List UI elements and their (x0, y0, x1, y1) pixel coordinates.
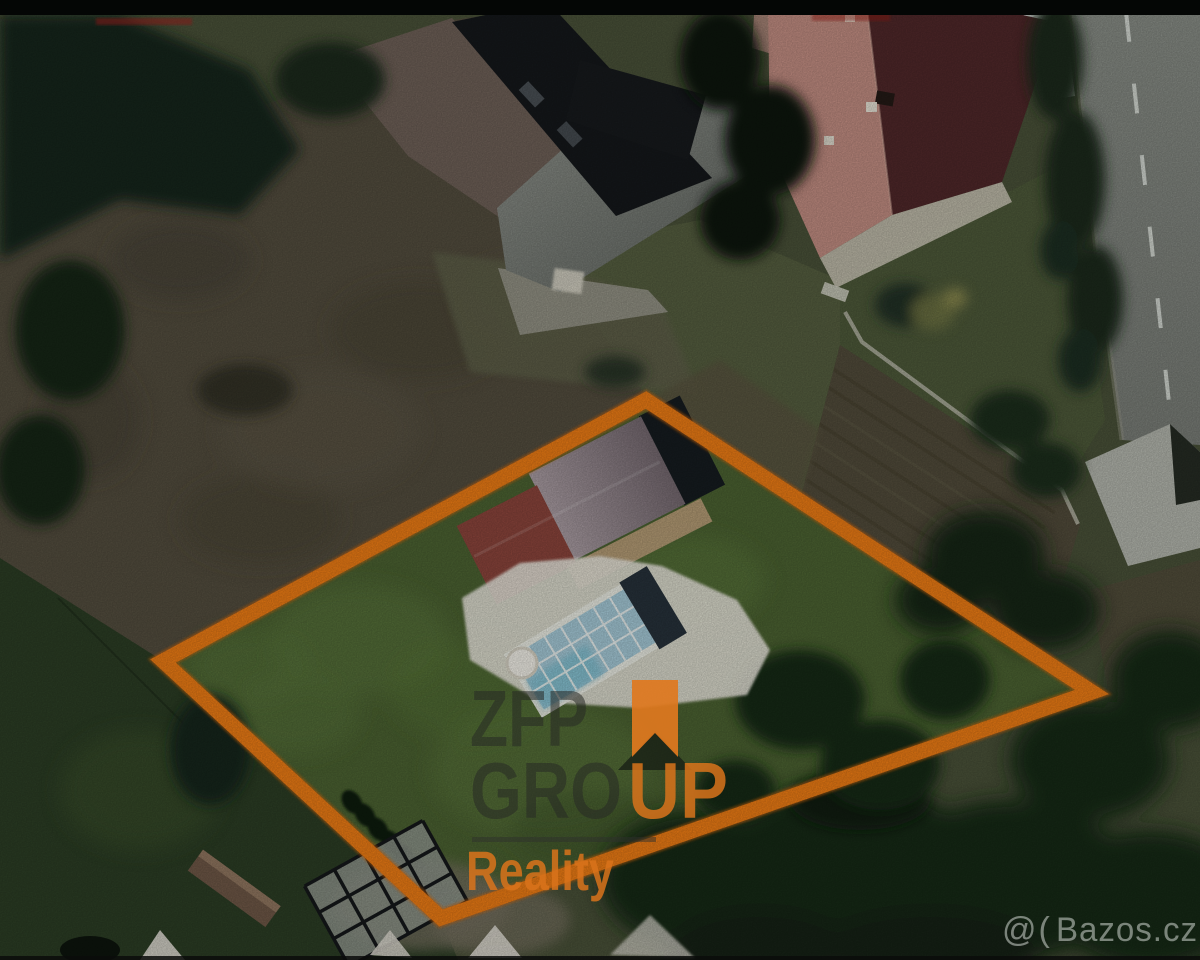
agency-watermark: ZFP GRO UP Reality (466, 674, 728, 902)
watermark-overlay: ZFP GRO UP Reality @( Bazos.cz (0, 0, 1200, 960)
agency-watermark-line2-gray: GRO (470, 746, 622, 835)
agency-watermark-line2-orange: UP (628, 746, 728, 835)
agency-watermark-line3: Reality (466, 839, 614, 902)
bazos-name: Bazos.cz (1056, 911, 1198, 949)
bazos-watermark: @( Bazos.cz (1002, 911, 1198, 949)
bazos-mark: @( (1002, 911, 1052, 949)
listing-photo: ZFP GRO UP Reality @( Bazos.cz (0, 0, 1200, 960)
